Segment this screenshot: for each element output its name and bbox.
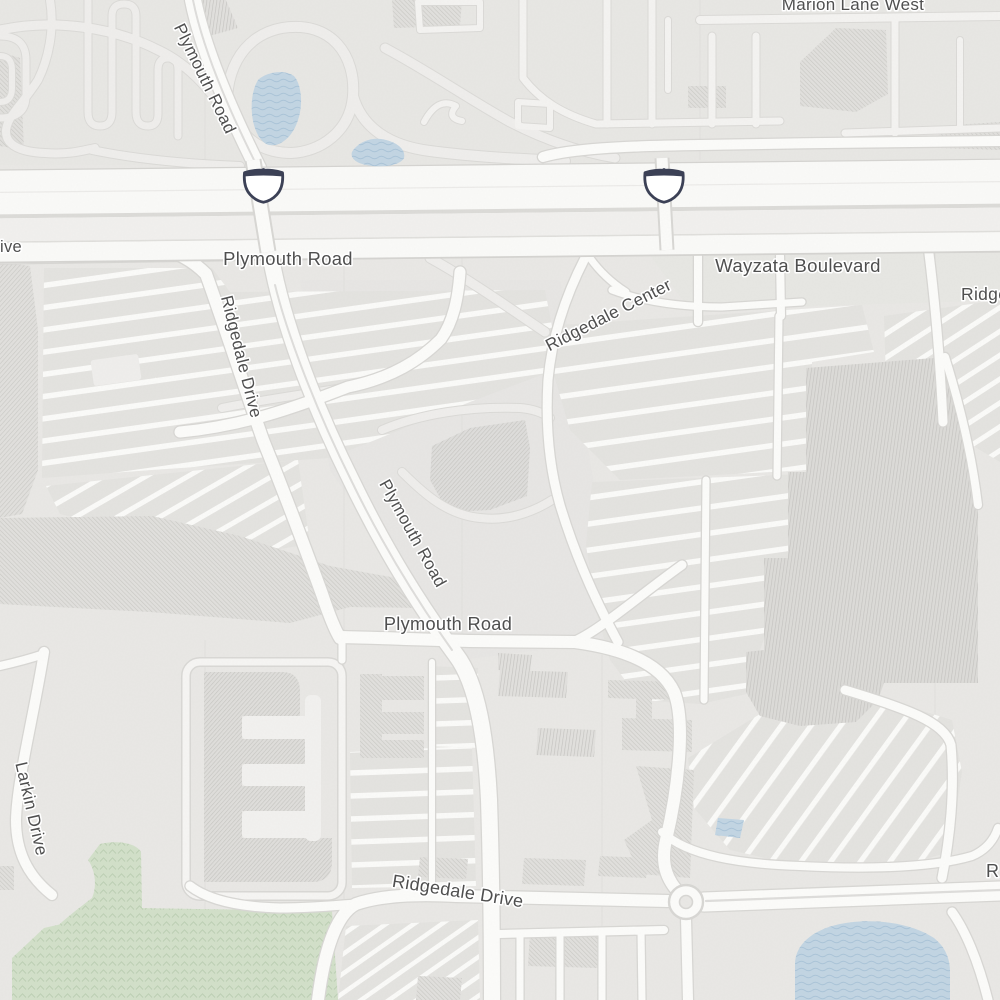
svg-text:R: R (986, 861, 999, 881)
svg-text:Marion Lane West: Marion Lane West (782, 0, 924, 14)
svg-text:Plymouth Road: Plymouth Road (384, 614, 512, 634)
svg-text:Ridgedal: Ridgedal (961, 284, 1000, 304)
svg-text:Wayzata Boulevard: Wayzata Boulevard (715, 255, 881, 276)
svg-text:Plymouth Road: Plymouth Road (223, 248, 353, 269)
svg-text:Drive: Drive (0, 238, 22, 256)
